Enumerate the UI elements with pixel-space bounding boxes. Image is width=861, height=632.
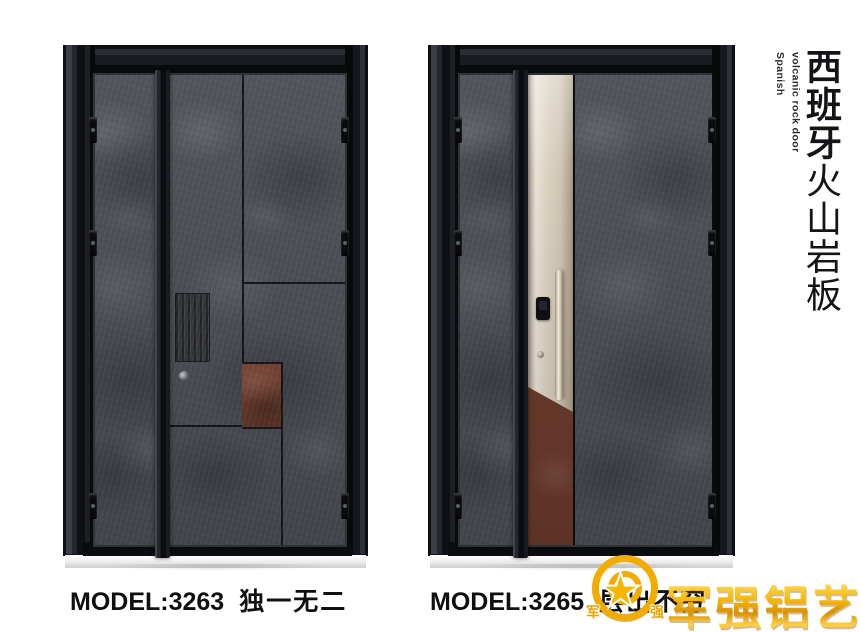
door-pull-handle	[155, 70, 170, 558]
hinge	[708, 117, 716, 143]
copper-accent-panel	[242, 362, 281, 429]
hinge	[454, 117, 462, 143]
english-subtitle-line1: Spanish	[772, 52, 787, 153]
panel-seam	[281, 362, 283, 545]
hinge	[341, 230, 349, 256]
product-caption-3263: MODEL:3263独一无二	[70, 582, 347, 618]
lock-cylinder	[179, 371, 189, 381]
star-icon: ★	[599, 568, 642, 616]
champagne-strip-panel	[528, 75, 573, 545]
model-code: MODEL:3263	[70, 588, 224, 616]
catalog-page: MODEL:3263独一无二 MODEL:3265层出不穷 Spanish vo…	[0, 0, 861, 632]
hinge	[89, 230, 97, 256]
hinge	[341, 493, 349, 519]
panel-seam	[242, 75, 244, 364]
model-code: MODEL:3265	[430, 588, 584, 616]
panel-seam	[242, 282, 345, 284]
hinge	[708, 230, 716, 256]
brand-name: 军强铝艺	[666, 572, 861, 632]
grooved-plaque	[175, 293, 210, 362]
copper-diagonal-panel	[528, 75, 573, 545]
smart-lock	[536, 297, 550, 320]
emblem-right-char: 强	[650, 602, 664, 622]
main-leaf-panel	[170, 75, 345, 545]
door-leaves	[460, 75, 710, 545]
hinge	[454, 493, 462, 519]
door-leaves	[95, 75, 345, 545]
chinese-title-rest: 火山岩板	[801, 162, 842, 314]
main-leaf-panel	[573, 75, 712, 545]
door-frame-top	[63, 45, 368, 75]
hinge	[89, 117, 97, 143]
chinese-title: 西班牙火山岩板	[803, 48, 839, 314]
model-tagline: 独一无二	[239, 588, 347, 616]
side-leaf-panel	[95, 75, 159, 545]
floor-shadow	[59, 564, 372, 574]
door-pull-handle	[513, 70, 528, 558]
emblem-left-char: 军	[586, 602, 600, 622]
hinge	[89, 493, 97, 519]
side-leaf-panel	[460, 75, 513, 545]
door-image-3265	[428, 45, 735, 568]
hinge	[341, 117, 349, 143]
chinese-title-bold: 西班牙	[801, 48, 842, 162]
hinge	[454, 230, 462, 256]
hinge	[708, 493, 716, 519]
lock-cylinder	[537, 351, 544, 358]
brand-emblem: 军 ★ 强	[586, 558, 666, 632]
english-subtitle: Spanish volcanic rock door	[772, 52, 802, 153]
vertical-pull-rod	[555, 270, 563, 400]
door-image-3263	[63, 45, 368, 568]
door-frame-top	[428, 45, 735, 75]
